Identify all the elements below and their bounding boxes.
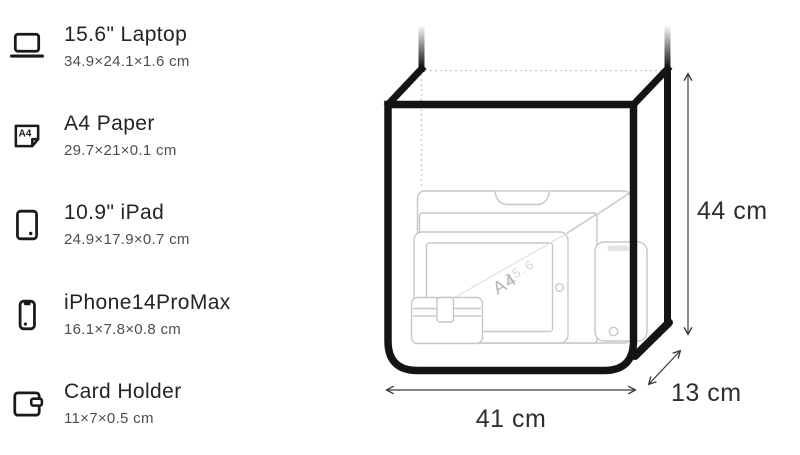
- list-item-card-holder: Card Holder 11×7×0.5 cm: [10, 379, 182, 428]
- depth-dimension-label: 13 cm: [671, 379, 742, 407]
- item-dimensions: 29.7×21×0.1 cm: [64, 142, 177, 160]
- item-dimensions: 16.1×7.8×0.8 cm: [64, 321, 231, 339]
- item-title: iPhone14ProMax: [64, 290, 231, 315]
- bag-hidden-edges: [422, 71, 665, 190]
- width-dimension-label: 41 cm: [476, 405, 547, 433]
- iphone-icon: [10, 298, 44, 332]
- item-title: A4 Paper: [64, 111, 177, 136]
- item-title: 15.6" Laptop: [64, 22, 190, 47]
- list-item-iphone: iPhone14ProMax 16.1×7.8×0.8 cm: [10, 290, 231, 339]
- height-dimension-label: 44 cm: [697, 197, 768, 225]
- a4-paper-icon: A4: [10, 119, 44, 153]
- ipad-icon: [10, 208, 44, 242]
- item-dimensions: 11×7×0.5 cm: [64, 410, 182, 428]
- card-holder-outline: [412, 298, 483, 344]
- item-title: 10.9" iPad: [64, 200, 190, 225]
- item-dimensions: 24.9×17.9×0.7 cm: [64, 231, 190, 249]
- list-item-a4-paper: A4 A4 Paper 29.7×21×0.1 cm: [10, 111, 177, 160]
- item-dimensions: 34.9×24.1×1.6 cm: [64, 53, 190, 71]
- list-item-laptop: 15.6" Laptop 34.9×24.1×1.6 cm: [10, 22, 190, 71]
- a4-icon-label: A4: [19, 128, 32, 139]
- card-holder-icon: [10, 387, 44, 421]
- laptop-icon: [10, 30, 44, 64]
- iphone-outline: [595, 242, 663, 341]
- list-item-ipad: 10.9" iPad 24.9×17.9×0.7 cm: [10, 200, 190, 249]
- item-title: Card Holder: [64, 379, 182, 404]
